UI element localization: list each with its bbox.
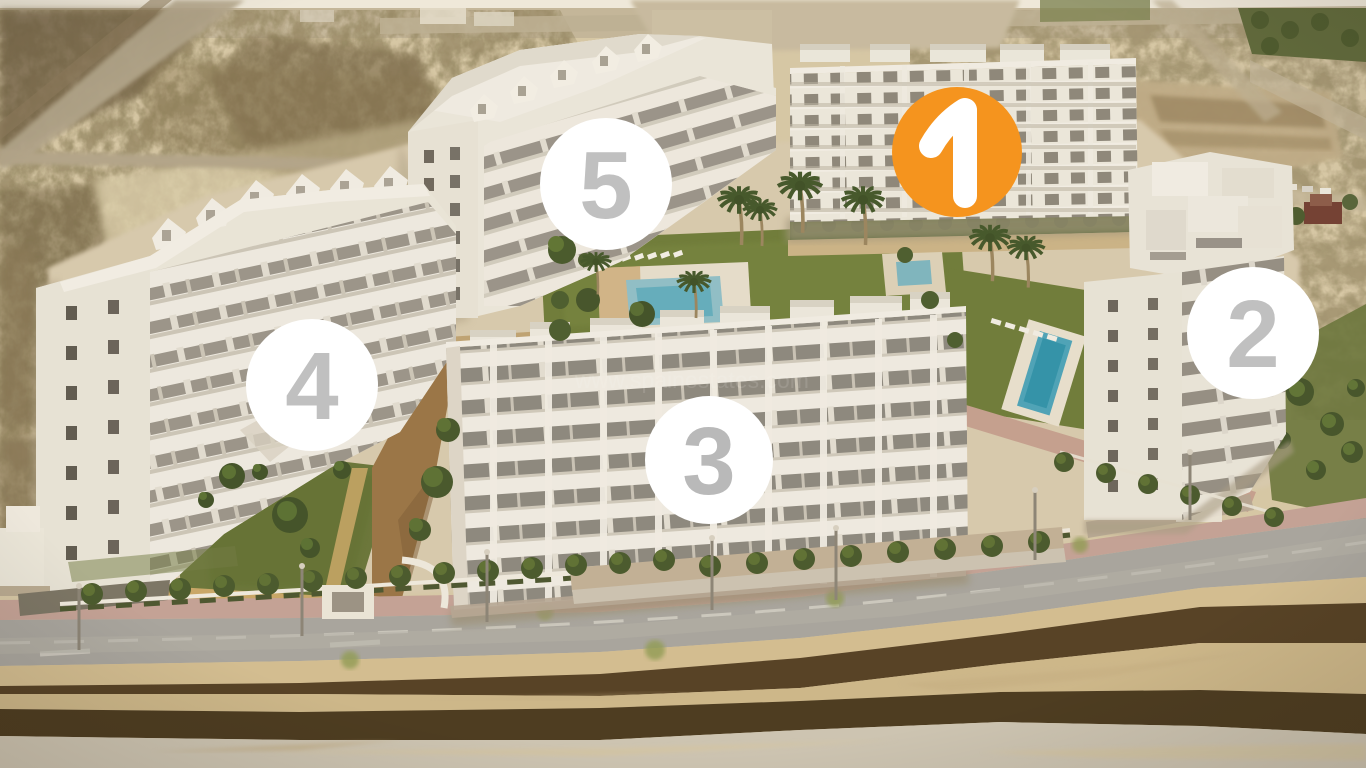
svg-text:3: 3: [682, 408, 735, 515]
svg-text:5: 5: [579, 132, 632, 239]
svg-text:4: 4: [285, 333, 338, 440]
svg-text:2: 2: [1226, 281, 1279, 388]
